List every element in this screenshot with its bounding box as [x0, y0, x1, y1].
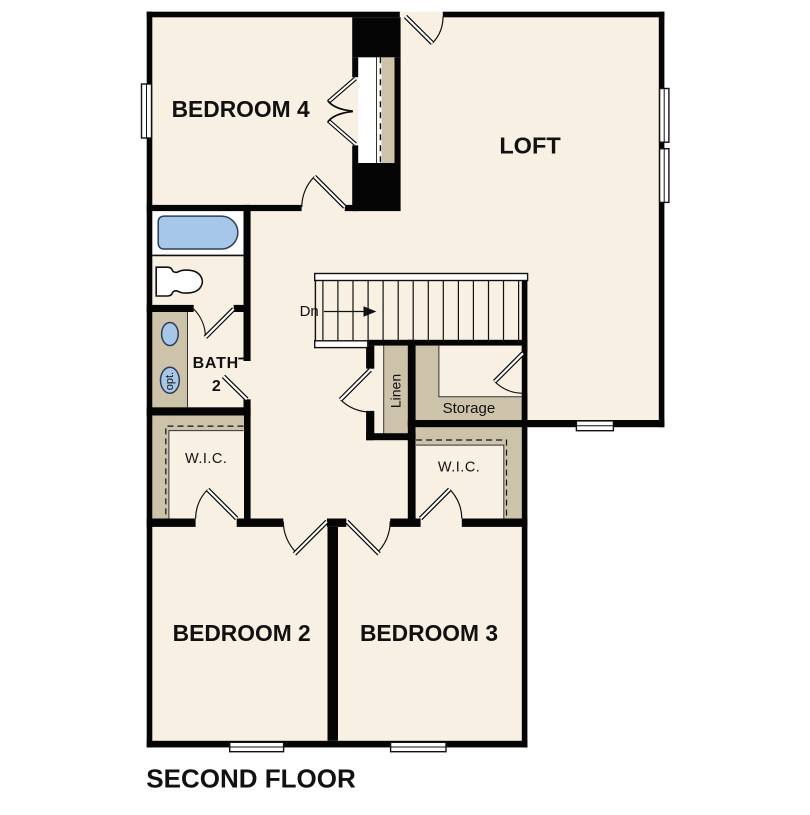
svg-text:Linen: Linen [387, 374, 403, 408]
svg-text:2: 2 [212, 378, 221, 395]
svg-text:Dn: Dn [300, 303, 319, 320]
svg-text:SECOND FLOOR: SECOND FLOOR [146, 764, 356, 794]
svg-text:opt.: opt. [164, 372, 176, 390]
svg-text:BATH: BATH [193, 355, 239, 372]
svg-text:BEDROOM 4: BEDROOM 4 [172, 96, 310, 122]
svg-text:Storage: Storage [443, 400, 496, 417]
svg-text:BEDROOM 3: BEDROOM 3 [360, 620, 498, 646]
svg-text:W.I.C.: W.I.C. [438, 460, 480, 476]
svg-text:W.I.C.: W.I.C. [185, 451, 227, 467]
svg-text:BEDROOM 2: BEDROOM 2 [173, 620, 311, 646]
svg-text:LOFT: LOFT [499, 133, 561, 159]
